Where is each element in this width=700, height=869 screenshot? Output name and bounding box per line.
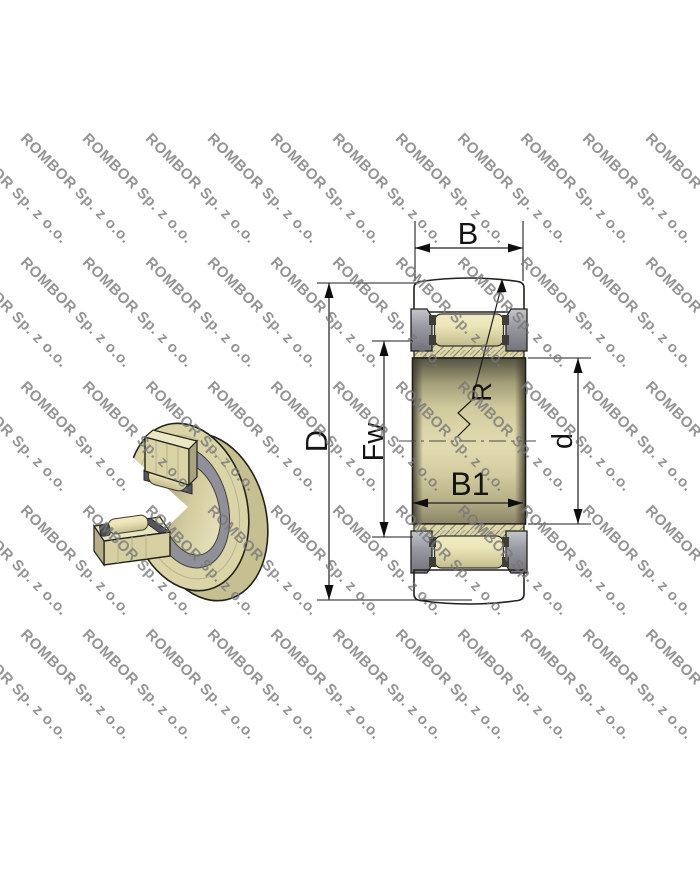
dim-label-d: d bbox=[547, 433, 579, 449]
arrowhead bbox=[415, 244, 430, 253]
needle-roller-bottom bbox=[435, 536, 504, 568]
arrowhead bbox=[508, 244, 523, 253]
roller bbox=[99, 523, 111, 536]
drawing-canvas: B D Fw d B1 bbox=[0, 0, 700, 869]
arrowhead bbox=[574, 509, 583, 524]
arrowhead bbox=[380, 522, 389, 537]
flange-bottom-left bbox=[411, 531, 432, 573]
section-view bbox=[399, 278, 540, 604]
bearing-drawing-page: B D Fw d B1 bbox=[0, 0, 700, 869]
outer-ring-top-section bbox=[414, 278, 524, 312]
pictorial-view-3d bbox=[70, 410, 285, 613]
dim-label-B: B bbox=[458, 216, 479, 251]
arrowhead bbox=[325, 283, 334, 298]
flange-bottom-right bbox=[506, 531, 527, 573]
arrowhead bbox=[574, 358, 583, 373]
arrowhead bbox=[497, 279, 507, 293]
arrowhead bbox=[325, 585, 334, 600]
flange-top-left bbox=[411, 309, 432, 351]
dim-label-R: R bbox=[467, 382, 497, 402]
cut-face-side bbox=[189, 441, 197, 485]
dim-label-B1: B1 bbox=[450, 466, 489, 502]
arrowhead bbox=[380, 341, 389, 356]
flange-top-right bbox=[506, 309, 527, 351]
outer-ring-bottom-section bbox=[414, 570, 524, 604]
dim-label-D: D bbox=[299, 430, 334, 452]
dim-label-Fw: Fw bbox=[358, 422, 390, 462]
